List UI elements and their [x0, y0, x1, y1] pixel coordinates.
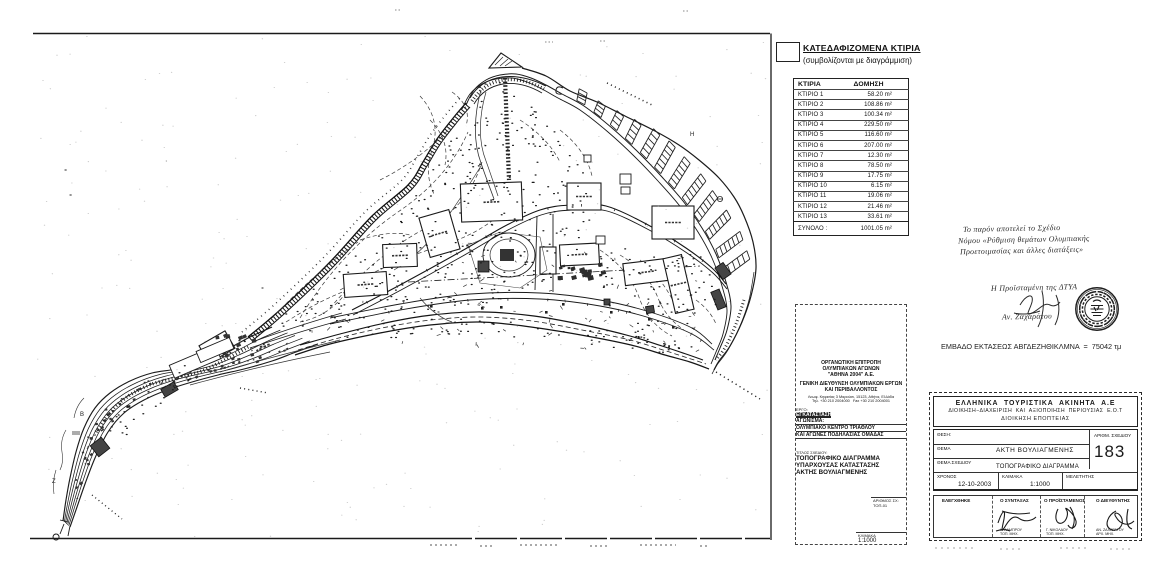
svg-text:H: H — [690, 132, 694, 138]
svg-text:B: B — [80, 412, 84, 418]
